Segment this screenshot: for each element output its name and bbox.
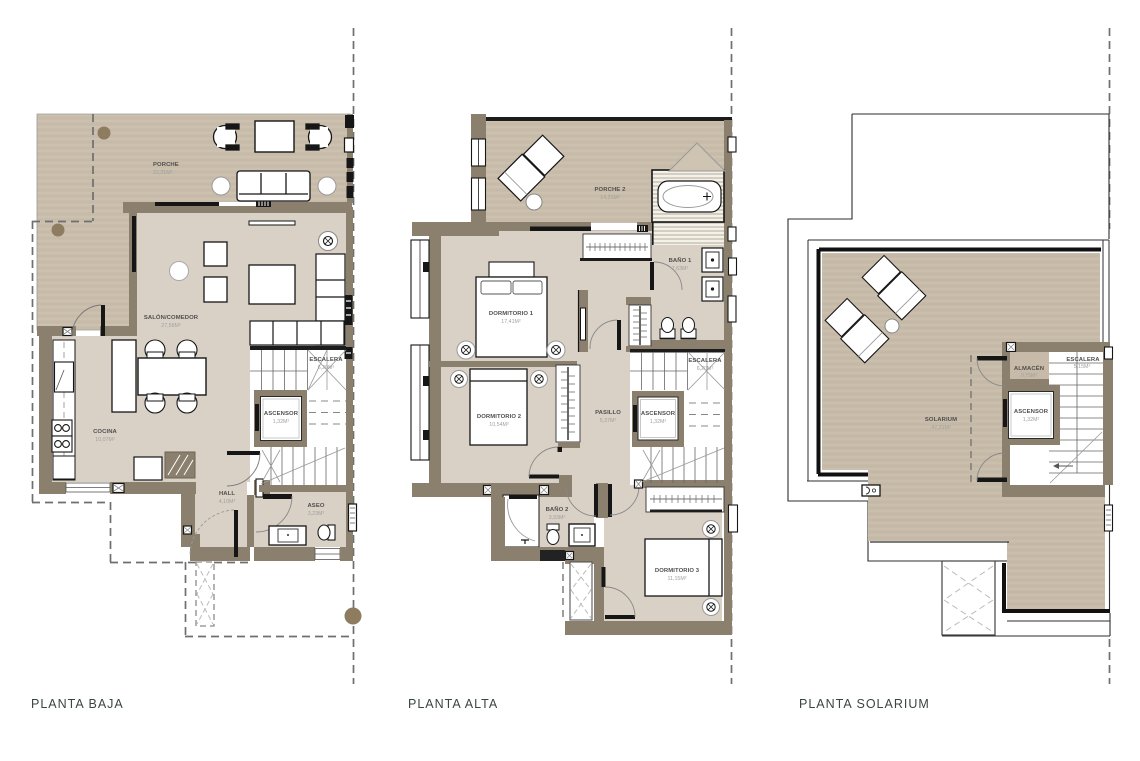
svg-text:1,32M²: 1,32M² <box>273 419 290 425</box>
svg-text:DORMITORIO 2: DORMITORIO 2 <box>477 414 522 420</box>
svg-text:BAÑO 2: BAÑO 2 <box>546 506 569 513</box>
svg-text:HALL: HALL <box>219 491 235 497</box>
svg-text:11,15M²: 11,15M² <box>667 576 686 582</box>
svg-text:ASCENSOR: ASCENSOR <box>641 411 676 417</box>
svg-text:PORCHE 2: PORCHE 2 <box>595 187 627 193</box>
svg-text:7,63M²: 7,63M² <box>672 266 689 272</box>
svg-text:3,93M²: 3,93M² <box>549 515 566 521</box>
svg-text:1,32M²: 1,32M² <box>650 419 667 425</box>
svg-text:ALMACÉN: ALMACÉN <box>1014 364 1044 372</box>
svg-text:PASILLO: PASILLO <box>595 410 621 416</box>
svg-text:SOLARIUM: SOLARIUM <box>925 417 957 423</box>
svg-text:6,20M²: 6,20M² <box>697 366 714 372</box>
svg-text:4,10M²: 4,10M² <box>219 499 236 505</box>
svg-text:ASEO: ASEO <box>307 503 324 509</box>
svg-text:1,32M²: 1,32M² <box>1023 417 1040 423</box>
svg-text:PLANTA ALTA: PLANTA ALTA <box>408 697 498 711</box>
svg-text:6,20M²: 6,20M² <box>318 365 335 371</box>
svg-text:PLANTA BAJA: PLANTA BAJA <box>31 697 124 711</box>
svg-text:COCINA: COCINA <box>93 429 117 435</box>
svg-text:47,21M²: 47,21M² <box>931 425 951 431</box>
svg-text:ESCALERA: ESCALERA <box>309 357 343 363</box>
svg-text:PLANTA SOLARIUM: PLANTA SOLARIUM <box>799 697 930 711</box>
svg-text:ESCALERA: ESCALERA <box>688 358 722 364</box>
svg-text:22,31M²: 22,31M² <box>153 170 173 176</box>
svg-text:10,54M²: 10,54M² <box>489 422 509 428</box>
svg-text:PORCHE: PORCHE <box>153 162 179 168</box>
svg-text:3,23M²: 3,23M² <box>308 511 325 517</box>
svg-text:5,37M²: 5,37M² <box>600 418 617 424</box>
svg-text:ASCENSOR: ASCENSOR <box>1014 409 1049 415</box>
svg-text:10,07M²: 10,07M² <box>95 437 115 443</box>
svg-text:SALÓN/COMEDOR: SALÓN/COMEDOR <box>144 313 199 321</box>
svg-text:27,56M²: 27,56M² <box>161 323 181 329</box>
svg-text:DORMITORIO 1: DORMITORIO 1 <box>489 311 534 317</box>
svg-text:0,75M²: 0,75M² <box>1021 373 1038 379</box>
svg-text:ASCENSOR: ASCENSOR <box>264 411 299 417</box>
svg-text:17,41M²: 17,41M² <box>501 319 521 325</box>
svg-text:5,15M²: 5,15M² <box>1074 364 1091 370</box>
svg-text:BAÑO 1: BAÑO 1 <box>669 257 692 264</box>
svg-text:14,31M²: 14,31M² <box>600 195 620 201</box>
svg-text:DORMITORIO 3: DORMITORIO 3 <box>655 568 700 574</box>
svg-text:ESCALERA: ESCALERA <box>1066 357 1100 363</box>
